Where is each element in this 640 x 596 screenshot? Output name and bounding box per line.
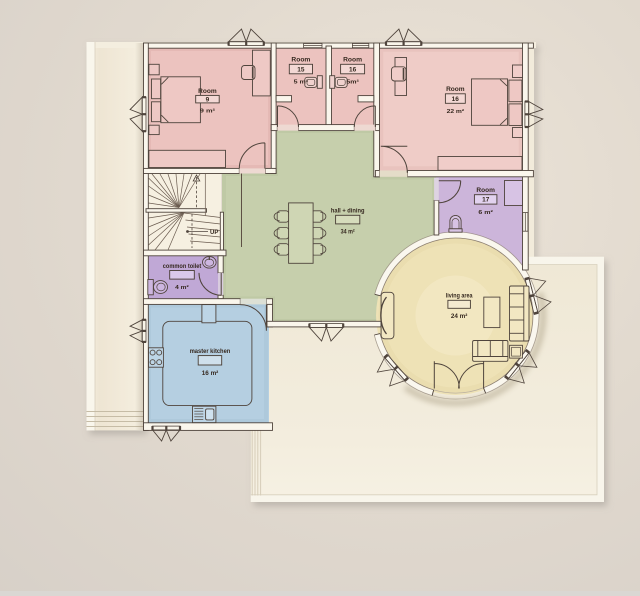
svg-text:16: 16	[452, 96, 460, 103]
svg-text:living area: living area	[446, 293, 473, 300]
svg-text:17: 17	[482, 197, 490, 204]
svg-text:22 m²: 22 m²	[447, 108, 465, 115]
svg-text:5m²: 5m²	[346, 79, 359, 86]
svg-text:Room: Room	[198, 88, 217, 95]
svg-text:24 m²: 24 m²	[451, 313, 468, 320]
svg-text:34 m²: 34 m²	[341, 229, 355, 236]
svg-text:common toilet: common toilet	[163, 263, 202, 270]
svg-text:Room: Room	[476, 187, 495, 194]
svg-text:Room: Room	[291, 57, 311, 64]
svg-text:15: 15	[297, 66, 305, 73]
svg-text:6 m²: 6 m²	[478, 209, 493, 216]
svg-text:9 m²: 9 m²	[200, 108, 215, 115]
svg-text:master kitchen: master kitchen	[190, 348, 231, 355]
svg-text:16: 16	[349, 66, 357, 73]
svg-text:Room: Room	[446, 86, 465, 93]
svg-text:4 m²: 4 m²	[175, 284, 189, 291]
svg-text:5 m²: 5 m²	[294, 79, 309, 86]
svg-text:UP: UP	[210, 230, 218, 236]
svg-text:9: 9	[206, 97, 210, 104]
svg-text:hall + dining: hall + dining	[331, 208, 365, 215]
svg-text:Room: Room	[343, 57, 363, 64]
svg-text:16 m²: 16 m²	[202, 370, 219, 377]
